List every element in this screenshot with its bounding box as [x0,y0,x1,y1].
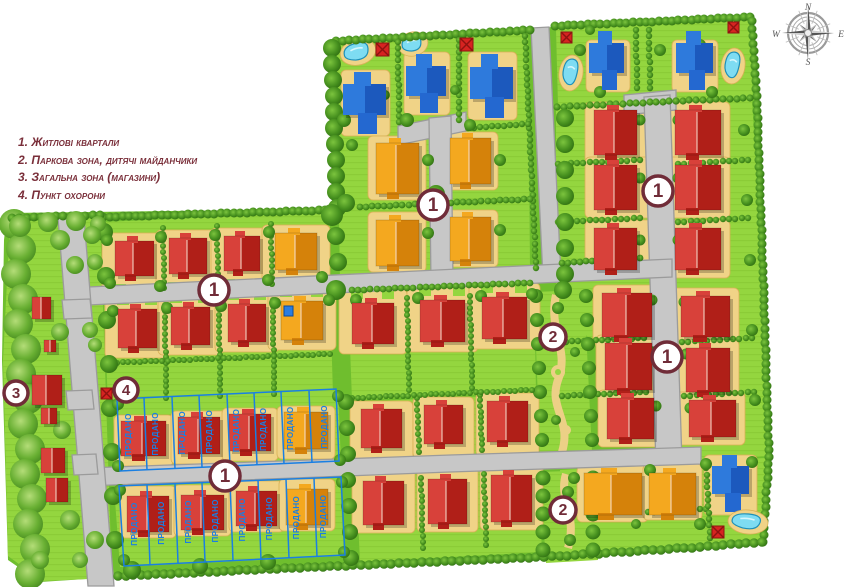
svg-text:ПРОДАНО: ПРОДАНО [292,496,301,539]
svg-text:ПРОДАНО: ПРОДАНО [259,408,268,451]
svg-text:ПРОДАНО: ПРОДАНО [238,498,247,541]
svg-text:1: 1 [428,195,439,216]
svg-text:ПРОДАНО: ПРОДАНО [157,501,166,544]
svg-text:4. Пункт охорони: 4. Пункт охорони [17,188,105,202]
svg-text:1: 1 [653,181,664,202]
svg-text:ПРОДАНО: ПРОДАНО [286,407,295,450]
svg-text:ПРОДАНО: ПРОДАНО [205,410,214,453]
svg-text:E: E [837,30,844,40]
svg-text:2: 2 [559,502,568,519]
svg-text:W: W [772,30,781,40]
svg-text:1. Житлові квартали: 1. Житлові квартали [18,135,119,149]
svg-text:ПРОДАНО: ПРОДАНО [178,411,187,454]
svg-text:ПРОДАНО: ПРОДАНО [265,497,274,540]
svg-text:ПРОДАНО: ПРОДАНО [319,495,328,538]
svg-text:S: S [806,58,811,68]
svg-text:N: N [804,3,812,13]
svg-text:ПРОДАНО: ПРОДАНО [320,405,329,448]
svg-text:ПРОДАНО: ПРОДАНО [232,409,241,452]
svg-text:2: 2 [549,329,558,346]
svg-text:4: 4 [122,382,131,399]
svg-text:ПРОДАНО: ПРОДАНО [211,499,220,542]
svg-text:ПРОДАНО: ПРОДАНО [184,500,193,543]
svg-text:ПРОДАНО: ПРОДАНО [124,413,133,456]
svg-text:1: 1 [220,466,231,487]
svg-text:3. Загальна зона (магазини): 3. Загальна зона (магазини) [18,170,160,184]
svg-text:1: 1 [209,280,220,301]
svg-text:ПРОДАНО: ПРОДАНО [130,502,139,545]
svg-text:1: 1 [662,347,673,368]
svg-text:ПРОДАНО: ПРОДАНО [151,412,160,455]
svg-text:2. Паркова зона, дитячі майдан: 2. Паркова зона, дитячі майданчики [17,153,197,167]
svg-text:3: 3 [12,385,20,402]
